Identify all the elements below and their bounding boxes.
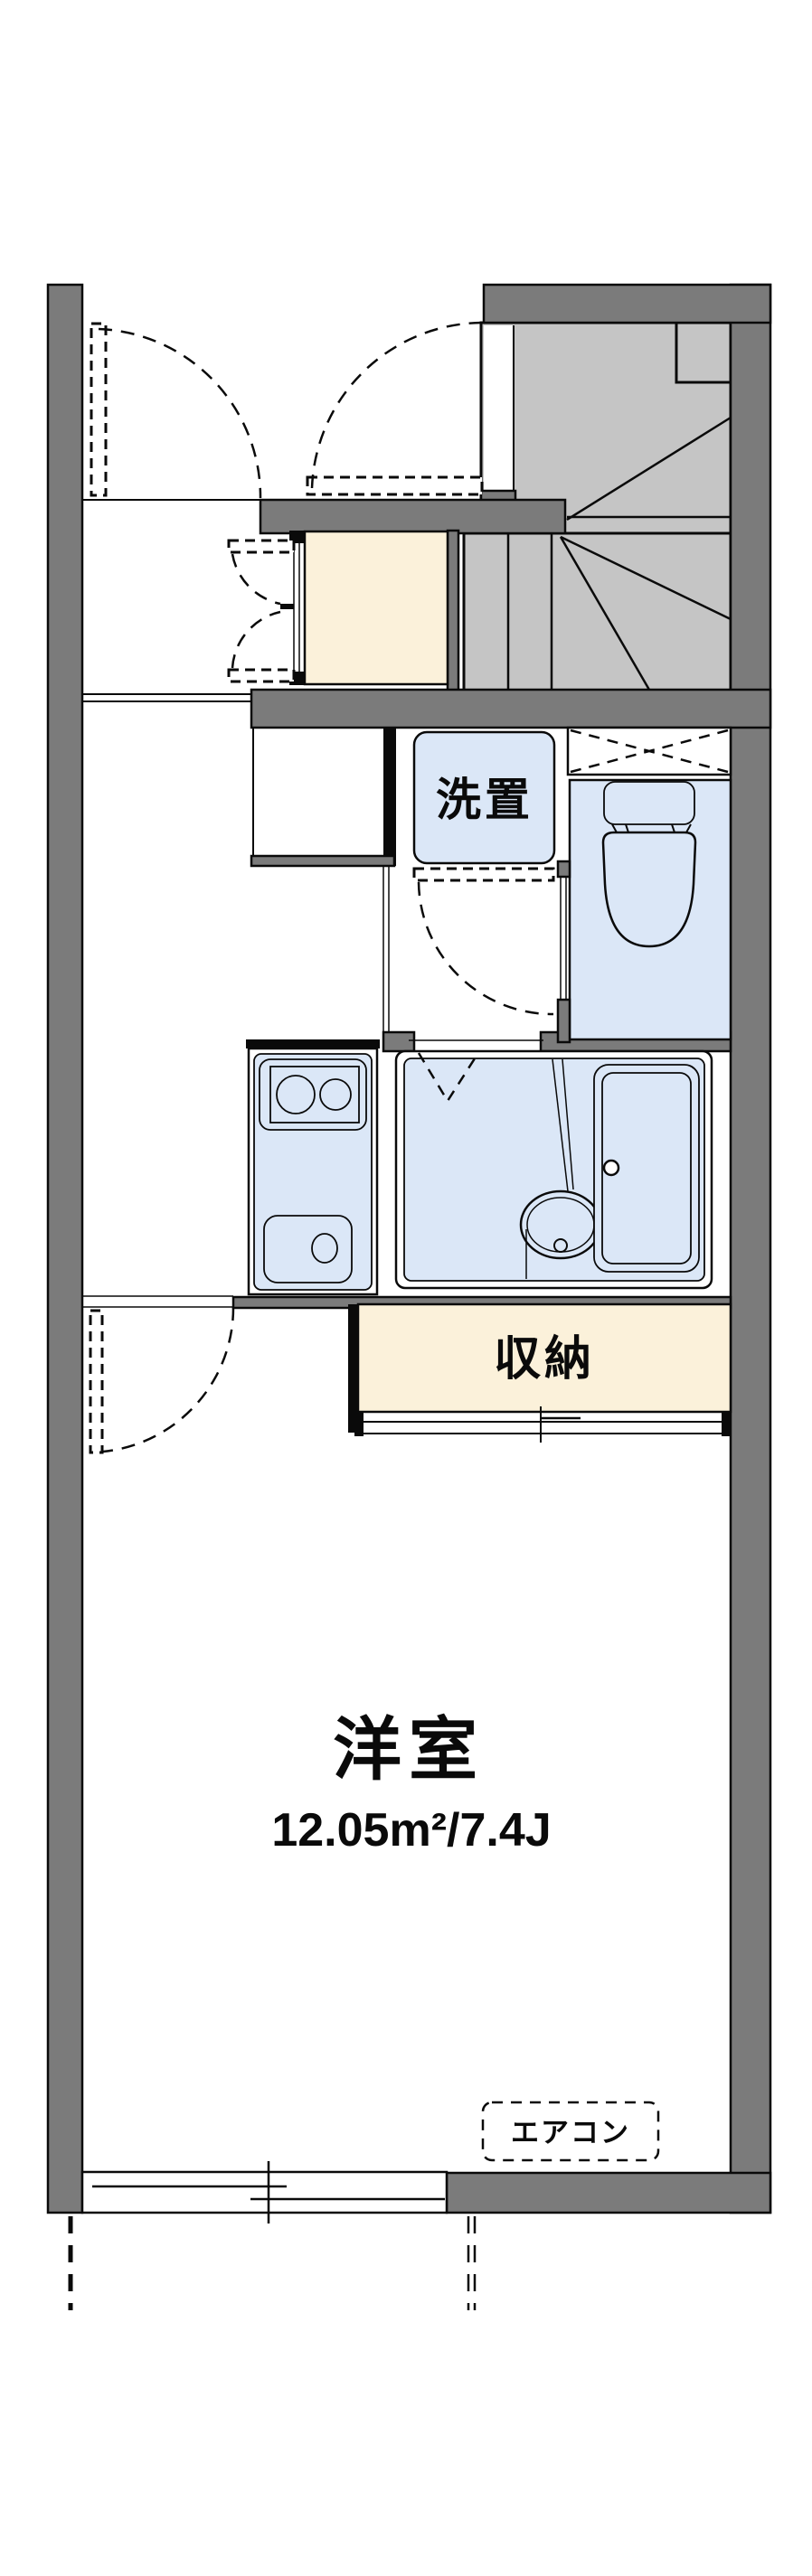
boundary-lines (71, 2216, 475, 2310)
wall-niche-right (383, 728, 396, 866)
bathroom (396, 1040, 712, 1288)
washer-space-label: 洗置 (436, 775, 533, 825)
toilet-door-leaf (414, 869, 553, 880)
niche (253, 728, 389, 1032)
cabinet-door-leaf (229, 670, 294, 682)
cabinet-door-meet-tick (280, 604, 294, 609)
bathtub-faucet (604, 1161, 618, 1175)
air-conditioner: エアコン (483, 2102, 658, 2160)
kitchen-counter-cap (246, 1039, 380, 1048)
cabinet-door-swing (232, 554, 280, 604)
aircon-label: エアコン (511, 2117, 630, 2148)
toilet-partition-stub (558, 1000, 570, 1042)
stairs-lower-run (464, 533, 731, 696)
kitchen-sink (264, 1216, 352, 1283)
hall-door-leaf (91, 324, 106, 495)
stove-burner (277, 1076, 315, 1114)
wall-right-exterior (731, 285, 770, 2213)
entry-storage-cabinet (305, 531, 448, 684)
wall-mid-horizontal (251, 690, 770, 728)
floor-plan: 洗置 (0, 0, 812, 2576)
stove-burner (320, 1079, 351, 1110)
storage-label: 収納 (494, 1333, 595, 1386)
western-room: 洋室 12.05m²/7.4J (271, 1712, 551, 1857)
wall-left-exterior (48, 285, 82, 2213)
stairs-entry-gap (484, 325, 514, 491)
toilet-door-swing (419, 882, 553, 1014)
storage-closet: 収納 (354, 1304, 731, 1443)
kitchen (246, 1039, 380, 1294)
wall-niche-bottom (251, 856, 394, 866)
room-name-label: 洋室 (333, 1712, 485, 1789)
wall-bath-left-stub (383, 1032, 414, 1051)
toilet-window (568, 728, 731, 775)
toilet-tank (604, 782, 694, 824)
front-door-leaf (307, 477, 482, 494)
slider-jamb (722, 1412, 731, 1436)
stairs-upper-landing (676, 323, 731, 382)
room-door-leaf (90, 1311, 102, 1453)
room-door-swing (103, 1307, 233, 1452)
wall-entry-stairs (260, 500, 565, 533)
front-door-swing (312, 323, 482, 488)
floor-plan-canvas: 洗置 (0, 0, 812, 2576)
wall-bottom-right (447, 2173, 770, 2213)
wall-genkan-right (448, 531, 458, 691)
bottom-window (82, 2161, 447, 2223)
room-area-label: 12.05m²/7.4J (271, 1804, 551, 1857)
sink-drain (312, 1234, 337, 1263)
wall-top (484, 285, 770, 323)
hall-door-swing (99, 329, 260, 498)
cabinet-door-leaf (229, 541, 294, 552)
cabinet-door-swing (232, 612, 280, 668)
toilet-partition-stub (558, 861, 570, 877)
window-frame (82, 2172, 447, 2213)
room-door (82, 1296, 233, 1453)
washer-space: 洗置 (414, 732, 554, 863)
slider-jamb (354, 1412, 364, 1436)
